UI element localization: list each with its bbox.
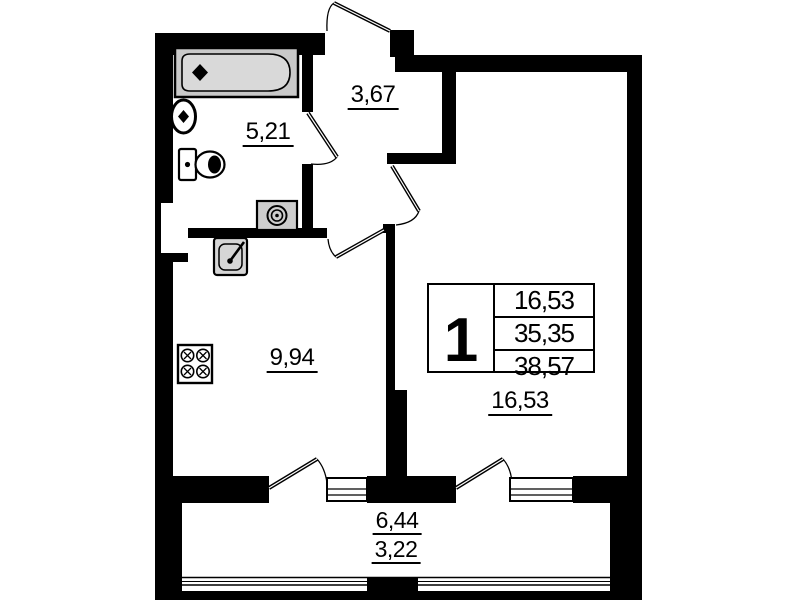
toilet-icon (179, 149, 225, 180)
washing-machine-icon (257, 201, 297, 230)
bathtub-icon (175, 48, 298, 97)
bathroom-area-label: 5,21 (243, 119, 294, 147)
hallway-area-label: 3,67 (348, 82, 399, 110)
floor-plan: 5,21 3,67 9,94 16,53 6,44 3,22 1 16,53 3… (0, 0, 799, 600)
legend-area-rows: 16,53 35,35 38,57 (495, 285, 593, 371)
wash-basin-icon (172, 100, 196, 133)
living-window-icon (510, 478, 573, 501)
kitchen-door-swing-icon (328, 230, 384, 257)
stove-icon (178, 345, 212, 383)
legend-usable-area: 35,35 (495, 316, 593, 349)
apartment-number: 1 (429, 285, 495, 371)
apartment-legend-table: 1 16,53 35,35 38,57 (427, 283, 595, 373)
legend-total-area: 38,57 (495, 349, 593, 382)
living-room-area-label: 16,53 (488, 388, 552, 416)
kitchen-window-icon (327, 478, 367, 501)
balcony-area-reduced-label: 3,22 (372, 537, 421, 564)
balcony-area-total-label: 6,44 (373, 508, 422, 535)
kitchen-balcony-door-swing-icon (269, 459, 327, 488)
legend-living-area: 16,53 (495, 285, 593, 316)
living-balcony-door-swing-icon (456, 459, 512, 488)
balcony-glazing-icon (181, 578, 610, 586)
entrance-door-swing-icon (327, 3, 390, 31)
kitchen-sink-icon (214, 238, 247, 275)
living-room-door-swing-icon (392, 166, 419, 225)
bathroom-door-swing-icon (308, 113, 337, 164)
kitchen-area-label: 9,94 (267, 345, 318, 373)
